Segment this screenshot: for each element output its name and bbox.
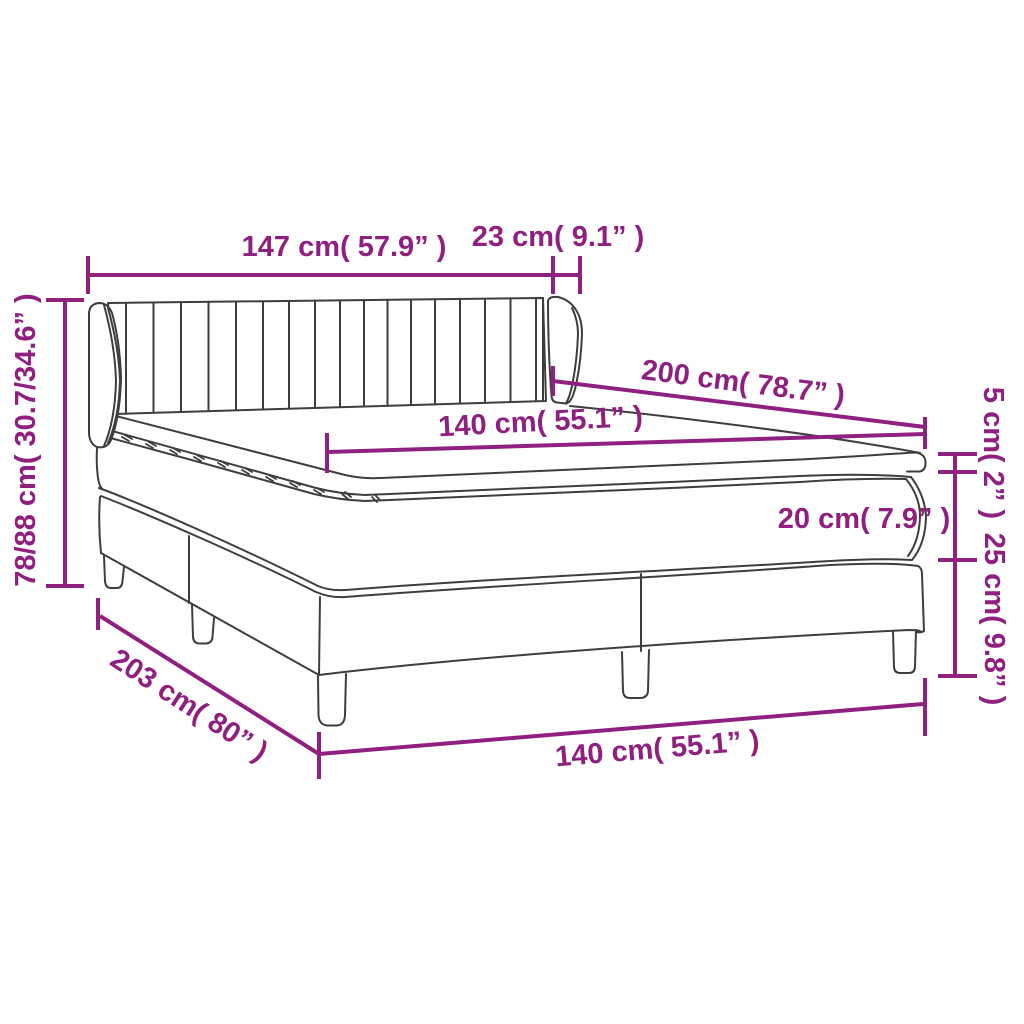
svg-text:78/88 cm( 30.7/34.6” ): 78/88 cm( 30.7/34.6” ): [10, 293, 42, 586]
svg-text:25 cm( 9.8” ): 25 cm( 9.8” ): [978, 533, 1010, 705]
svg-text:5 cm( 2” ): 5 cm( 2” ): [977, 387, 1009, 519]
svg-text:147 cm( 57.9” ): 147 cm( 57.9” ): [242, 231, 447, 263]
svg-text:20 cm( 7.9” ): 20 cm( 7.9” ): [778, 503, 950, 535]
svg-text:23 cm( 9.1” ): 23 cm( 9.1” ): [472, 221, 644, 253]
